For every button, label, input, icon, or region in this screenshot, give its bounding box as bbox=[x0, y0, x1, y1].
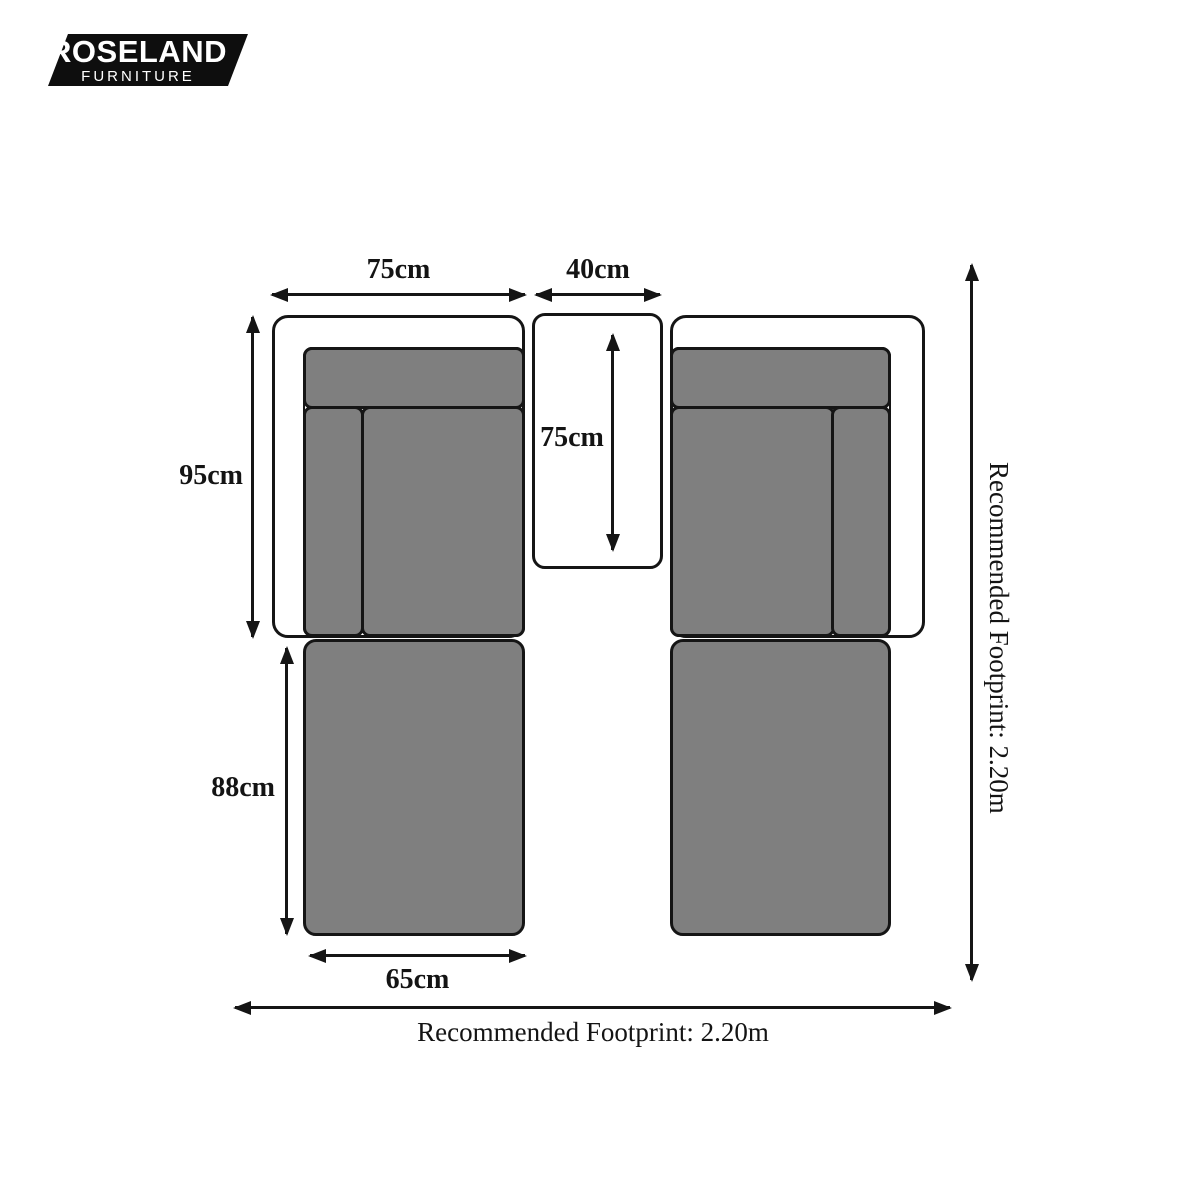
furniture-dimension-diagram: ROSELAND FURNITURE 75cm 40cm 95cm 75cm 8… bbox=[0, 0, 1200, 1200]
chaise-width-label: 65cm bbox=[310, 964, 525, 996]
right-armrest-cushion bbox=[831, 406, 891, 637]
chaise-length-label: 88cm bbox=[187, 772, 275, 804]
chaise-width-arrow bbox=[310, 954, 525, 957]
table-depth-arrow bbox=[611, 335, 614, 550]
brand-name: ROSELAND bbox=[49, 36, 227, 67]
brand-subtitle: FURNITURE bbox=[81, 69, 195, 84]
footprint-right-label: Recommended Footprint: 2.20m bbox=[983, 462, 1014, 814]
seat-width-arrow bbox=[272, 293, 525, 296]
left-chaise-cushion bbox=[303, 639, 525, 936]
brand-logo-text: ROSELAND FURNITURE bbox=[48, 34, 228, 86]
table-width-arrow bbox=[536, 293, 660, 296]
left-back-cushion bbox=[303, 347, 525, 409]
seat-depth-arrow bbox=[251, 317, 254, 637]
left-seat-cushion bbox=[361, 406, 525, 637]
right-chaise-cushion bbox=[670, 639, 891, 936]
right-back-cushion bbox=[670, 347, 891, 409]
seat-width-label: 75cm bbox=[272, 254, 525, 286]
right-seat-cushion bbox=[670, 406, 835, 637]
brand-logo: ROSELAND FURNITURE bbox=[48, 34, 248, 86]
footprint-bottom-label: Recommended Footprint: 2.20m bbox=[235, 1017, 951, 1048]
seat-depth-label: 95cm bbox=[155, 460, 243, 492]
chaise-length-arrow bbox=[285, 648, 288, 934]
table-width-label: 40cm bbox=[536, 254, 660, 286]
left-armrest-cushion bbox=[303, 406, 364, 637]
footprint-bottom-arrow bbox=[235, 1006, 950, 1009]
footprint-right-arrow bbox=[970, 265, 973, 980]
table-depth-label: 75cm bbox=[537, 422, 607, 454]
